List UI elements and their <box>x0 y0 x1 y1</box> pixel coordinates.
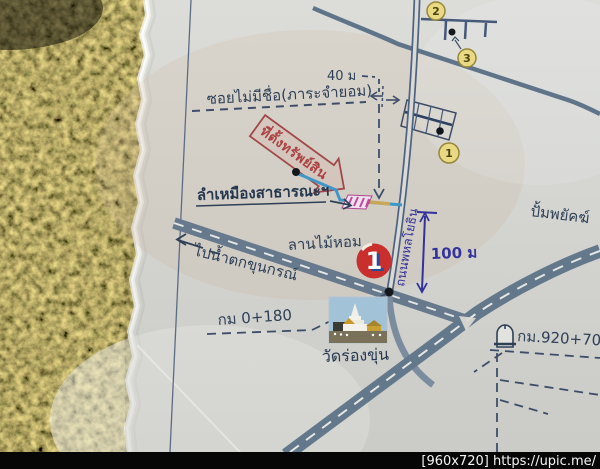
marker-circle-1: 1 <box>439 143 459 163</box>
temple-picture <box>329 297 387 343</box>
photo-of-hand-drawn-map: ที่ตั้งทรัพย์สิน 1 1 <box>0 0 600 469</box>
canal-start-dot <box>292 168 300 176</box>
wat-rong-khun-label: วัดร่องขุ่น <box>321 345 389 367</box>
marker-circle-2: 2 <box>427 2 445 20</box>
location-dot-1 <box>436 127 444 135</box>
route-badge-number: 1 <box>366 247 383 275</box>
location-dot-3 <box>449 29 456 36</box>
map-photo-canvas: ที่ตั้งทรัพย์สิน 1 1 <box>0 0 600 469</box>
marker-3-number: 3 <box>463 52 471 65</box>
marker-1-number: 1 <box>445 147 453 160</box>
marker-2-number: 2 <box>432 5 440 18</box>
forty-meter-label: 40 ม <box>327 69 356 84</box>
hundred-meter-label: 100 ม <box>431 243 478 263</box>
watermark: [960x720] https://upic.me/ <box>421 454 596 469</box>
canal-yellow-section <box>370 202 390 204</box>
road-junction-dot <box>385 288 394 297</box>
